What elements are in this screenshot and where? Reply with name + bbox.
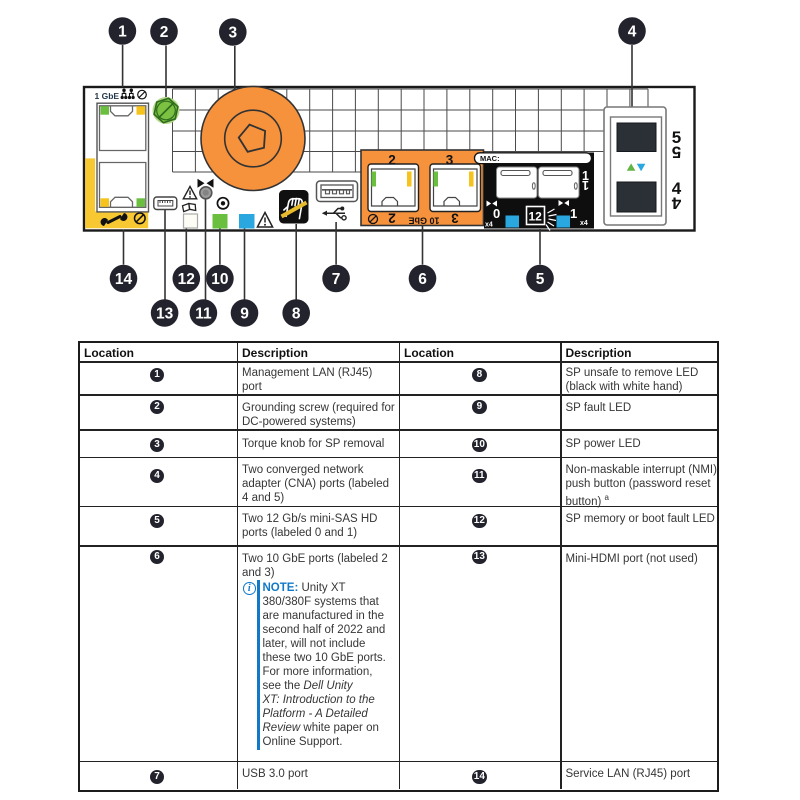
svg-text:6: 6 xyxy=(418,271,427,288)
svg-text:2: 2 xyxy=(388,211,396,226)
svg-text:1: 1 xyxy=(582,178,589,192)
svg-text:MAC:: MAC: xyxy=(480,154,500,163)
svg-text:14: 14 xyxy=(115,271,133,288)
svg-text:10 GbE: 10 GbE xyxy=(408,215,439,225)
svg-text:5: 5 xyxy=(672,142,681,161)
svg-text:7: 7 xyxy=(332,271,341,288)
svg-text:x4: x4 xyxy=(580,220,588,227)
svg-text:2: 2 xyxy=(160,24,169,41)
svg-text:x4: x4 xyxy=(485,222,493,229)
svg-text:0: 0 xyxy=(493,206,500,221)
svg-text:3: 3 xyxy=(451,211,459,226)
svg-text:11: 11 xyxy=(195,306,212,323)
svg-text:12: 12 xyxy=(529,210,543,224)
svg-text:9: 9 xyxy=(240,306,249,323)
svg-text:8: 8 xyxy=(292,306,301,323)
svg-text:3: 3 xyxy=(228,25,237,42)
svg-text:4: 4 xyxy=(628,24,637,41)
svg-text:13: 13 xyxy=(156,306,174,323)
svg-text:5: 5 xyxy=(536,271,545,288)
svg-text:1: 1 xyxy=(118,24,127,41)
svg-text:1 GbE: 1 GbE xyxy=(95,91,120,101)
svg-text:12: 12 xyxy=(178,271,195,288)
svg-text:10: 10 xyxy=(211,271,228,288)
svg-text:4: 4 xyxy=(671,193,681,212)
svg-text:1: 1 xyxy=(570,206,577,221)
